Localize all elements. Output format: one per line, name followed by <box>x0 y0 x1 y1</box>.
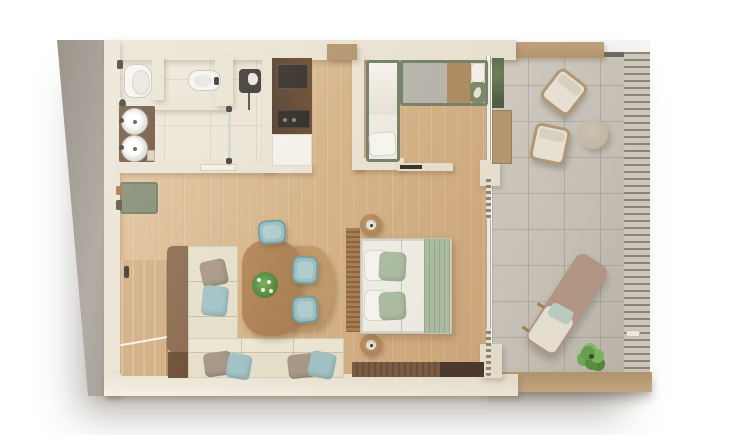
safe <box>277 64 308 89</box>
wall-left <box>104 40 120 396</box>
beaded-curtain <box>486 176 491 220</box>
round-sink <box>121 108 148 135</box>
hall-niche-wall <box>327 44 357 60</box>
round-nightstand-with-lamp <box>360 334 382 356</box>
potted-plant <box>581 346 595 360</box>
round-sink <box>121 135 148 162</box>
sink-tap <box>119 145 124 150</box>
round-nightstand-with-lamp <box>360 214 382 236</box>
round-pouf <box>578 119 608 149</box>
shower-door-hinge <box>226 158 232 164</box>
minibar-appliance <box>277 110 310 128</box>
sage-bed-pillow <box>378 251 406 281</box>
daybed-leaf-pillow <box>470 82 486 103</box>
hall-decor-item <box>116 186 122 195</box>
slatted-headboard <box>346 228 360 332</box>
single-bed-duvet <box>369 63 397 115</box>
shower-door-hinge <box>226 106 232 112</box>
amenity-tray <box>147 150 155 161</box>
hedge-planter <box>492 58 504 108</box>
taupe-throw-pillow <box>199 258 230 289</box>
terrace-slatted-railing <box>624 52 650 374</box>
daybed-tan-cushion <box>447 63 471 103</box>
wall-top <box>104 40 516 60</box>
shower-pipe <box>248 93 250 110</box>
daybed-white-pillow <box>471 63 485 83</box>
door-jamb <box>168 352 188 378</box>
terrace-armchair <box>528 122 571 167</box>
hall-decor-item <box>116 200 122 210</box>
green-bench <box>120 182 158 214</box>
toilet-flush-plate <box>117 60 123 69</box>
dining-chair <box>291 295 318 323</box>
teal-throw-pillow <box>225 352 253 381</box>
bidet <box>188 70 221 91</box>
sage-bed-throw <box>424 239 450 333</box>
daybed-grey-cushion <box>403 63 447 103</box>
extruded-wall-side <box>57 40 104 396</box>
wall-toilet-divider <box>152 56 164 100</box>
shower-glass-door <box>228 104 231 166</box>
toilet <box>124 64 152 98</box>
sink-tap <box>119 118 124 123</box>
sofa-wood-back-panel <box>167 246 188 352</box>
wood-planter <box>492 110 512 164</box>
dining-chair <box>291 255 318 284</box>
media-console-dark-end <box>440 362 484 377</box>
wall-shelf-slot <box>400 165 422 169</box>
floor-plan-render <box>0 0 754 435</box>
sage-bed-pillow <box>378 291 406 320</box>
shower-fixture <box>239 69 261 93</box>
white-cabinet <box>272 134 312 166</box>
railing-latch <box>626 330 640 337</box>
beaded-curtain <box>486 328 491 376</box>
teal-throw-pillow <box>201 285 230 318</box>
wall-kids-room-left <box>352 56 364 170</box>
teal-throw-pillow <box>307 350 338 381</box>
dining-chair <box>257 219 287 245</box>
media-console <box>352 362 440 377</box>
single-bed-pillow <box>368 131 397 157</box>
door-handle <box>124 266 129 278</box>
plant-centerpiece <box>252 272 278 298</box>
